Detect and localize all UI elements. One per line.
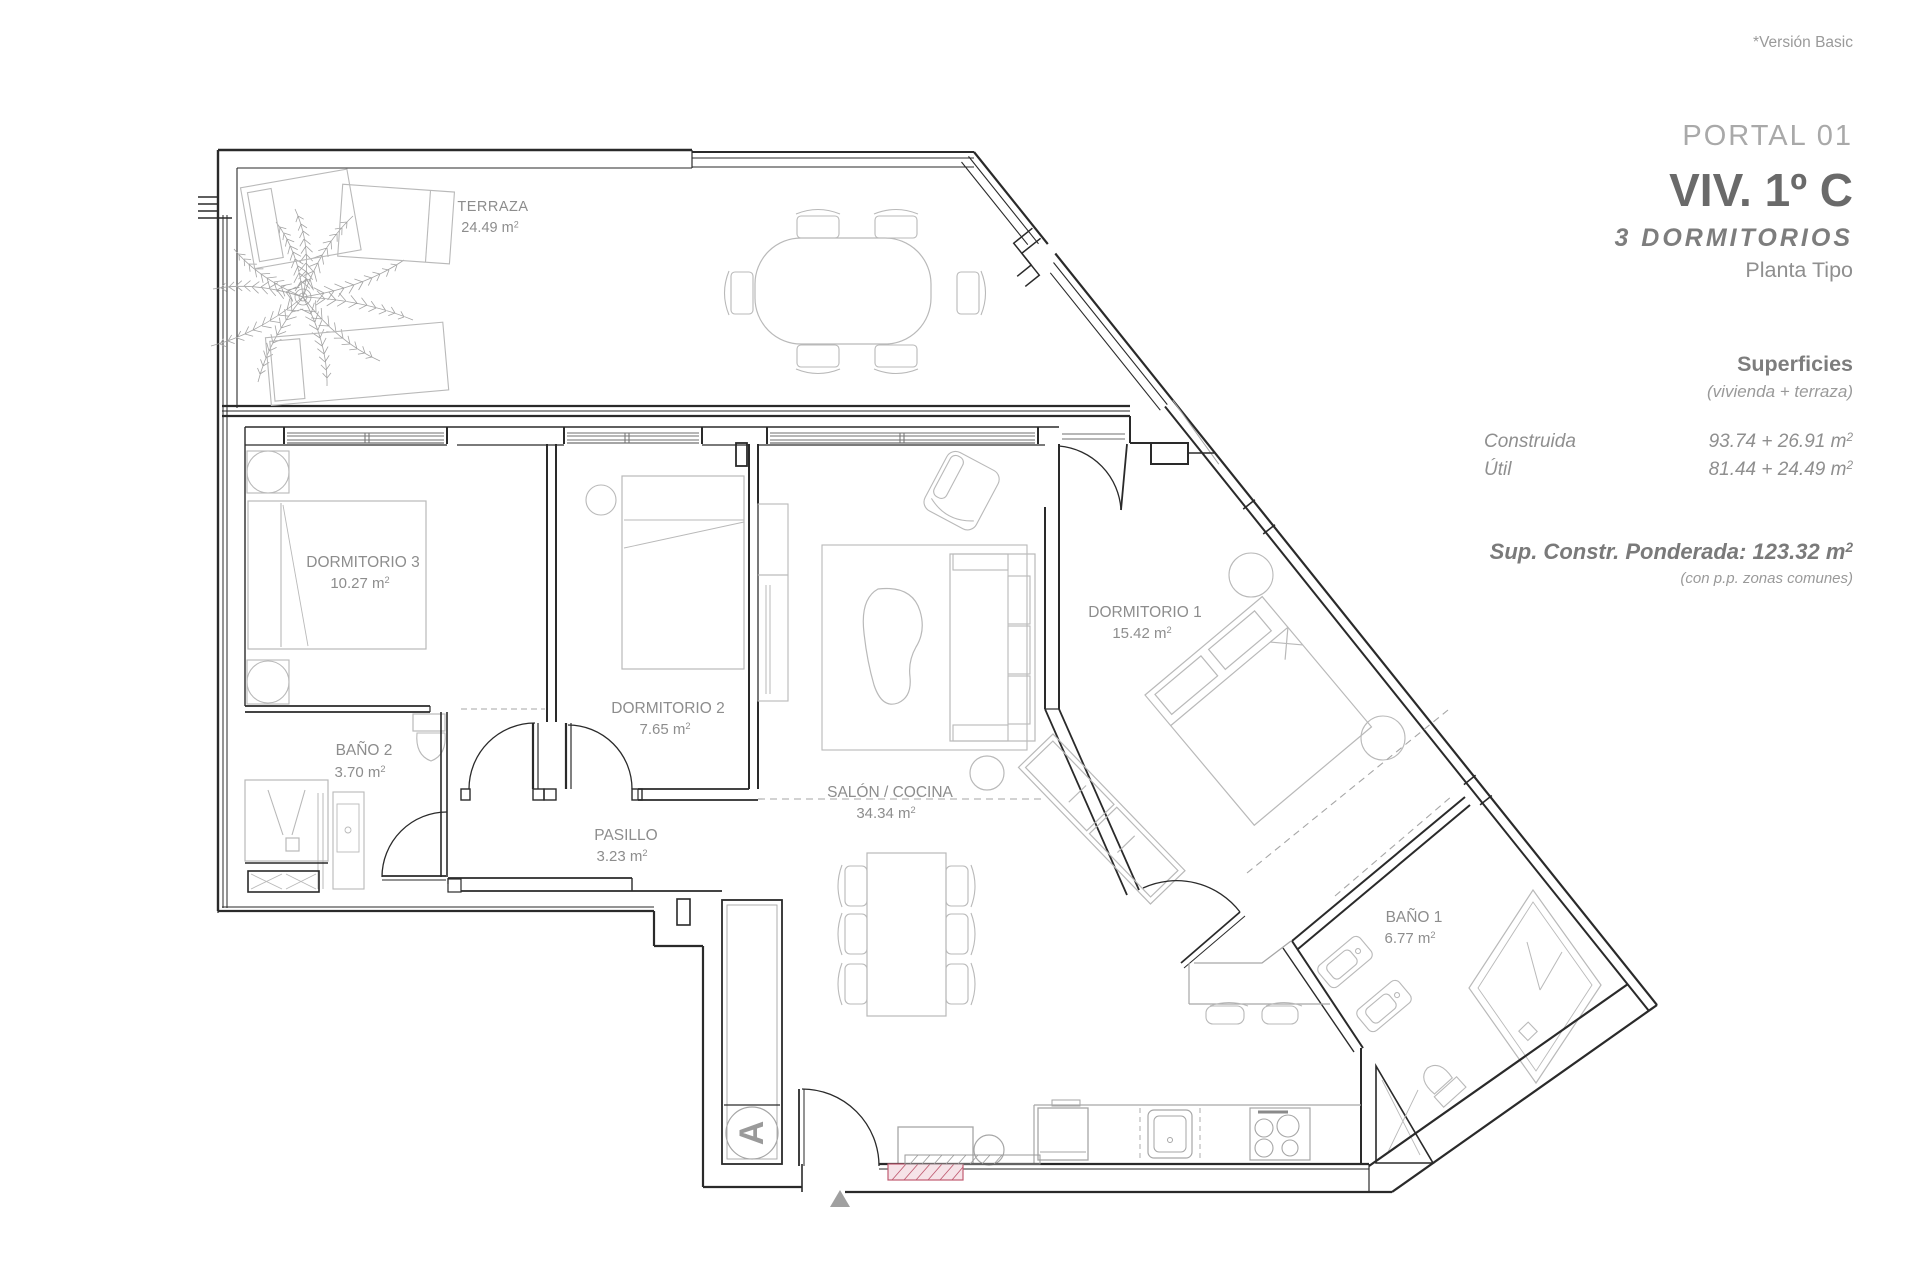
svg-text:(vivienda + terraza): (vivienda + terraza)	[1707, 382, 1853, 401]
svg-text:93.74 + 26.91 m2: 93.74 + 26.91 m2	[1709, 430, 1854, 452]
svg-text:BAÑO 1: BAÑO 1	[1386, 909, 1443, 926]
svg-text:Planta Tipo: Planta Tipo	[1745, 258, 1853, 282]
svg-text:34.34 m2: 34.34 m2	[856, 805, 915, 822]
svg-text:DORMITORIO 3: DORMITORIO 3	[306, 554, 419, 571]
svg-text:7.65 m2: 7.65 m2	[639, 721, 690, 738]
svg-text:Construida: Construida	[1484, 431, 1576, 452]
svg-text:SALÓN / COCINA: SALÓN / COCINA	[827, 784, 953, 801]
svg-text:3.70 m2: 3.70 m2	[334, 764, 385, 781]
svg-text:10.27 m2: 10.27 m2	[330, 575, 389, 592]
svg-text:PASILLO: PASILLO	[594, 827, 657, 844]
svg-text:3.23 m2: 3.23 m2	[596, 848, 647, 865]
svg-text:*Versión Basic: *Versión Basic	[1753, 34, 1853, 51]
svg-text:6.77 m2: 6.77 m2	[1384, 930, 1435, 947]
svg-text:Superficies: Superficies	[1737, 352, 1853, 376]
svg-text:Sup. Constr. Ponderada: 123.32: Sup. Constr. Ponderada: 123.32 m2	[1490, 539, 1854, 564]
svg-text:BAÑO 2: BAÑO 2	[336, 742, 393, 759]
svg-text:DORMITORIO 1: DORMITORIO 1	[1088, 604, 1201, 621]
svg-text:24.49 m2: 24.49 m2	[461, 219, 518, 236]
svg-text:15.42 m2: 15.42 m2	[1112, 625, 1171, 642]
svg-text:3 DORMITORIOS: 3 DORMITORIOS	[1614, 224, 1853, 252]
svg-text:Útil: Útil	[1484, 458, 1512, 480]
svg-text:VIV. 1º C: VIV. 1º C	[1669, 164, 1853, 216]
svg-text:A: A	[733, 1121, 771, 1146]
svg-text:PORTAL 01: PORTAL 01	[1682, 120, 1853, 152]
svg-text:(con p.p. zonas comunes): (con p.p. zonas comunes)	[1680, 570, 1853, 587]
svg-text:81.44 + 24.49 m2: 81.44 + 24.49 m2	[1709, 458, 1854, 480]
svg-text:DORMITORIO 2: DORMITORIO 2	[611, 700, 724, 717]
svg-text:TERRAZA: TERRAZA	[457, 199, 528, 215]
